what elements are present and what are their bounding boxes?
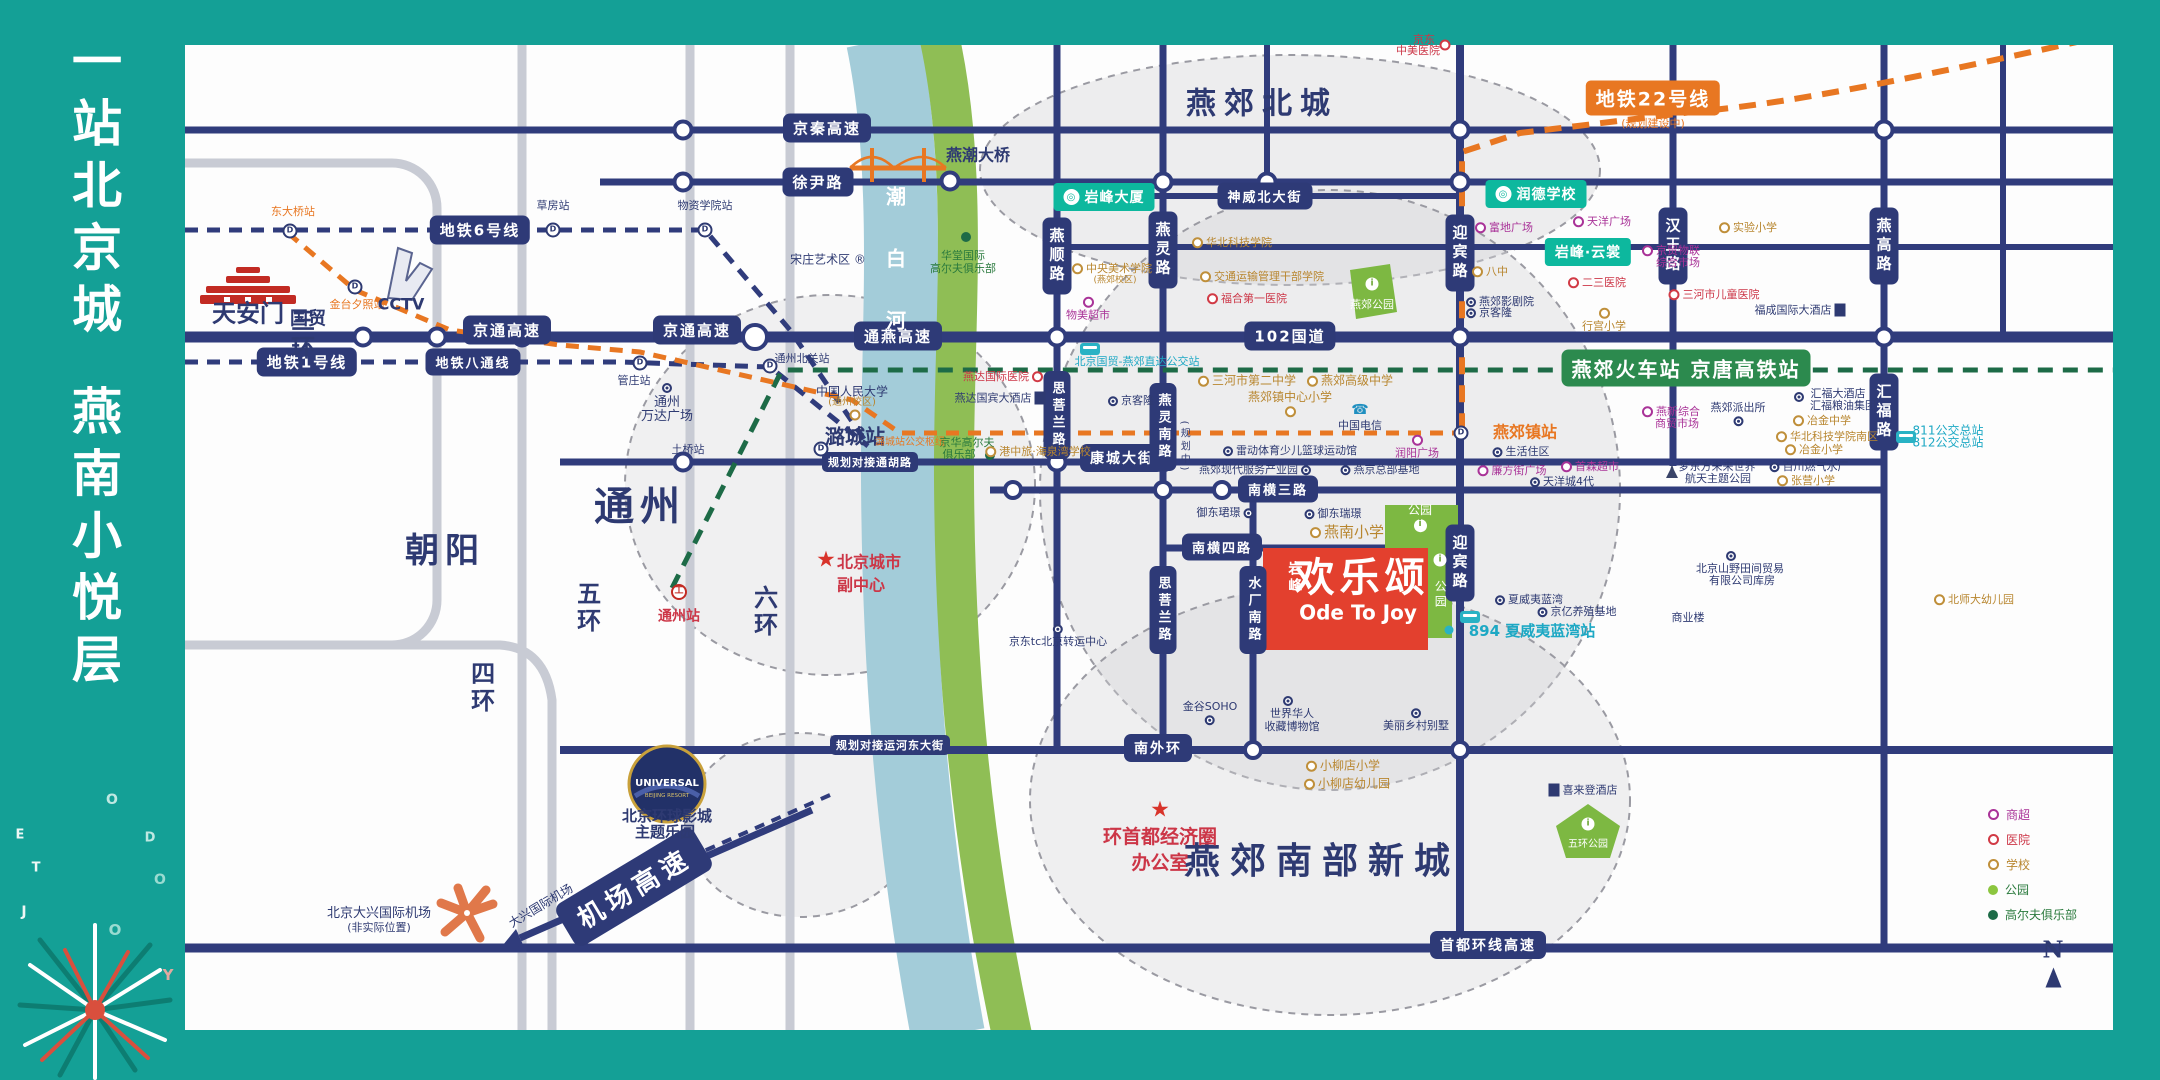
map-label: 河 (886, 311, 906, 332)
brand-logo-icon: ◎ (1064, 189, 1080, 205)
road-badge-text: 燕郊火车站 京唐高铁站 (1572, 354, 1801, 383)
map-label: 天洋城4代 (1530, 476, 1594, 488)
map-label: 燕达国宾大酒店 (955, 392, 1046, 405)
map-label-text: 副中心 (837, 578, 885, 595)
joy-letter: O (106, 792, 118, 808)
map-label: 华堂国际 (941, 250, 985, 262)
road-badge-text: 首都环线高速 (1440, 935, 1536, 955)
metro-icon (546, 223, 561, 238)
hosp-icon (1032, 371, 1043, 382)
map-label: 天洋广场 (1573, 216, 1631, 228)
school-icon (1777, 475, 1788, 486)
map-label-text: 潞城站公交枢纽 (875, 438, 945, 449)
map-label-text: 燕南小学 (1324, 525, 1384, 541)
sidebar-title-char: 城 (72, 270, 122, 342)
map-label: 京东tc北京转运中心 (1009, 624, 1107, 648)
map-label-text: 高尔夫俱乐部 (930, 263, 996, 275)
map-icon (814, 442, 829, 457)
map-label-text: 冶金小学 (1799, 444, 1843, 456)
map-label: 燕达国际医院 (963, 371, 1043, 383)
map-label-text: 夏威夷蓝湾 (1508, 594, 1563, 606)
map-label: 二三医院 (1568, 277, 1626, 289)
road-badge-text: 燕高路 (1874, 218, 1895, 275)
map-label: 有限公司库房 (1709, 575, 1775, 587)
map-label: 北京城市 (837, 555, 901, 572)
map-icon (763, 359, 778, 374)
map-label: 土桥站 (672, 444, 705, 456)
map-label: 收藏博物馆 (1265, 721, 1320, 733)
hosp-icon (1988, 834, 1999, 845)
map-icon (1794, 392, 1804, 402)
map-icon (816, 548, 836, 571)
joy-letter: D (145, 831, 156, 846)
map-label: 金谷SOHO (1183, 701, 1238, 725)
map-label-text: (规划建设中) (1621, 118, 1685, 130)
map-label-text: 物美超市 (1066, 310, 1110, 322)
map-icon (698, 223, 713, 238)
road-badge-text: 地铁八通线 (435, 353, 510, 372)
map-label: 御东珺璟 (1197, 507, 1254, 519)
project-name-en: Ode To Joy (1299, 603, 1417, 624)
map-label-text: 公园 (1408, 504, 1432, 517)
map-label: 首森超市 (1561, 461, 1619, 473)
project-name-en-text: Ode To Joy (1299, 603, 1417, 624)
map-label: 润阳广场 (1395, 435, 1439, 460)
map-label: 梦东方未来世界 (1679, 461, 1756, 473)
road-badge: 思菩兰路 (1150, 566, 1177, 654)
map-label: 中美医院 (1396, 45, 1440, 57)
firework-decoration (20, 925, 170, 1078)
road-badge-text: 燕灵南路 (1154, 393, 1173, 461)
map-label-text: 三河市第二中学 (1212, 375, 1296, 388)
map-label: 汇福粮油集团 (1810, 400, 1876, 412)
road-badge-text: 地铁22号线 (1596, 85, 1710, 112)
road-badge: 地铁6号线 (430, 216, 530, 245)
map-label-text: 百川燃气水厂 (1783, 461, 1849, 473)
map-icon (1366, 278, 1379, 291)
star-icon (1150, 798, 1170, 821)
map-label-text: 四环 (467, 661, 492, 715)
area-tongzhou: 通州 (594, 486, 686, 528)
navy-icon (1530, 477, 1540, 487)
map-label-text: (非实际位置) (347, 922, 411, 934)
school-icon (1192, 237, 1203, 248)
map-label: 办公室 (1131, 854, 1188, 874)
map-label-text: 北京城市 (837, 555, 901, 572)
map-label-text: 燕达国宾大酒店 (955, 392, 1032, 404)
map-icon (1454, 426, 1469, 441)
metro-icon (633, 356, 648, 371)
map-label-text: 综合市场 (1656, 257, 1700, 269)
brand-logo-icon: ◎ (1496, 186, 1512, 202)
joy-letter: J (21, 904, 26, 920)
map-label-text: 天洋广场 (1587, 216, 1631, 228)
map-label: 物美超市 (1066, 297, 1110, 322)
metro-icon (814, 442, 829, 457)
road-badge-text: 迎宾路 (1450, 535, 1471, 592)
school-icon (1599, 308, 1610, 319)
map-label: 美丽乡村别墅 (1383, 708, 1449, 732)
map-icon (546, 223, 561, 238)
map-label: 中央美术学院 (1072, 263, 1152, 275)
map-label-text: 办公室 (1131, 854, 1188, 874)
map-poster: UNIVERSAL BEIJING RESORT (0, 0, 2160, 1080)
map-label: 燕新综合 (1642, 406, 1700, 418)
legend-item-label: 医院 (2006, 831, 2030, 848)
map-label: (规划中) (1178, 421, 1189, 474)
bus-icon (1080, 343, 1100, 355)
map-label: 商业楼 (1672, 612, 1705, 624)
road-badge-text: 地铁6号线 (440, 220, 520, 241)
bldg-icon (1035, 392, 1046, 405)
map-label-text: 物资学院站 (678, 200, 733, 212)
road-badge-text: 规划对接运河东大街 (836, 737, 944, 753)
map-label-text: 三河市儿童医院 (1683, 289, 1760, 301)
navy-icon (1466, 297, 1476, 307)
map-icon (1150, 798, 1170, 821)
shop-icon (1478, 465, 1489, 476)
map-label-text: 俱乐部 (943, 449, 976, 461)
map-label-text: 汇福粮油集团 (1810, 400, 1876, 412)
map-label-text: 894 夏威夷蓝湾站 (1469, 624, 1596, 640)
map-label: 燕郊派出所 (1711, 402, 1766, 426)
joy-letter: E (16, 828, 25, 843)
map-label-text: 通州站 (658, 610, 700, 625)
joy-letter: O (154, 872, 166, 888)
map-label-text: 812公交总站 (1913, 437, 1984, 450)
road-badge: 规划对接运河东大街 (830, 735, 950, 755)
map-label-text: 通州北关站 (775, 353, 830, 365)
map-label-text: 有限公司库房 (1709, 575, 1775, 587)
map-icon (633, 356, 648, 371)
map-label: 宋庄艺术区 ® (790, 254, 866, 267)
road-badge: 神威北大街 (1217, 183, 1312, 210)
map-label-text: 福合第一医院 (1221, 293, 1287, 305)
map-label-text: 福成国际大酒店 (1755, 304, 1832, 316)
map-label-text: 白 (886, 249, 906, 270)
map-label: 燕郊公园 (1350, 299, 1394, 311)
map-label-text: 京东tc北京转运中心 (1009, 636, 1107, 648)
map-label-text: 燕新综合 (1656, 406, 1700, 418)
navy-icon (1283, 696, 1293, 706)
map-label: 综合市场 (1656, 257, 1700, 269)
legend-item: 商超 (1988, 806, 2077, 823)
map-label-text: 华北科技学院南区 (1790, 431, 1878, 443)
map-label-text: 梦东方未来世界 (1679, 461, 1756, 473)
map-label-text: 实验小学 (1733, 222, 1777, 234)
hosp-icon (1440, 40, 1451, 51)
map-label-text: 管庄站 (618, 375, 651, 387)
road-badge-text: 102国道 (1254, 326, 1325, 347)
legend-item: 医院 (1988, 831, 2077, 848)
map-label-text: (燕郊校区) (1093, 276, 1136, 285)
map-label-text: 美丽乡村别墅 (1383, 720, 1449, 732)
navy-icon (1726, 551, 1736, 561)
map-label: 国贸 (290, 311, 326, 330)
map-label: 金台夕照站 (330, 299, 385, 311)
map-label: 白 (886, 249, 906, 270)
road-badge: 首都环线高速 (1430, 931, 1546, 959)
map-label: 京亿养殖基地 (1538, 606, 1617, 618)
map-label-text: 小柳店小学 (1320, 760, 1380, 773)
legend-item-label: 公园 (2005, 881, 2029, 898)
map-label: 世界华人 (1270, 708, 1314, 720)
sidebar-title-char: 层 (72, 620, 122, 692)
map-label-text: 世界华人 (1270, 708, 1314, 720)
map-label: 港中旅·海泉湾学校 (985, 446, 1091, 458)
map-label: 通州站 (658, 610, 700, 625)
school-icon (1304, 779, 1315, 790)
map-label-text: 张营小学 (1791, 475, 1835, 487)
map-label-text: 通州 (654, 396, 680, 410)
map-label-text: 万达广场 (641, 410, 693, 424)
map-label: 894 夏威夷蓝湾站 (1469, 624, 1596, 640)
map-icon (1440, 40, 1451, 51)
map-icon (1283, 696, 1293, 706)
shop-icon (1988, 809, 1999, 820)
map-label-text: 润阳广场 (1395, 448, 1439, 460)
school-icon (1776, 431, 1787, 442)
shop-icon (1475, 222, 1486, 233)
bus-icon (1896, 431, 1916, 443)
road-badge: 102国道 (1244, 322, 1335, 351)
map-label: 副中心 (837, 578, 885, 595)
school-icon (1198, 376, 1209, 387)
map-label-text: 北京山野田间贸易 (1696, 563, 1784, 575)
map-label: 张营小学 (1777, 475, 1835, 487)
map-label: 廉方街广场 (1478, 465, 1547, 477)
map-label-text: 燕郊镇中心小学 (1248, 391, 1332, 404)
compass-label: N (2042, 937, 2063, 964)
map-label-text: 雷动体育少儿篮球运动馆 (1236, 445, 1357, 457)
road-badge: ◎岩峰大厦 (1054, 183, 1155, 211)
road-badge-text: 神威北大街 (1227, 187, 1302, 206)
map-label: 俱乐部 (943, 449, 976, 461)
map-label: 燕郊镇中心小学 (1248, 391, 1332, 417)
school-icon (1306, 761, 1317, 772)
map-icon (1080, 343, 1100, 355)
map-label: 燕郊镇站 (1493, 425, 1557, 442)
school-icon (1785, 444, 1796, 455)
map-label-text: 草房站 (537, 200, 570, 212)
navy-icon (1223, 446, 1233, 456)
navy-icon (1244, 508, 1254, 518)
shop-icon (1083, 297, 1094, 308)
map-label-text: 燕郊高级中学 (1321, 375, 1393, 388)
map-label-text: 河 (886, 311, 906, 332)
dotcyan-icon (1445, 626, 1454, 635)
legend-item: 学校 (1988, 856, 2077, 873)
map-icon (1582, 818, 1595, 831)
map-label: 东大桥站 (271, 206, 315, 218)
map-label: 通州 (654, 396, 680, 410)
map-label: 公园 (1434, 580, 1447, 610)
map-label-text: 燕郊现代服务产业园 (1199, 464, 1298, 476)
navy-icon (1108, 396, 1118, 406)
road-badge: ◎润德学校 (1486, 180, 1587, 208)
map-label: 燕郊高级中学 (1307, 375, 1393, 388)
navy-icon (1411, 708, 1421, 718)
area-yanjiao-north-text: 燕郊北城 (1186, 88, 1338, 120)
map-label-text: 生活住区 (1506, 446, 1550, 458)
map-label: 燕潮大桥 (946, 148, 1010, 165)
road-badge-text: 思菩兰路 (1048, 381, 1067, 449)
map-label: 富地广场 (1475, 222, 1533, 234)
joy-letter: T (32, 861, 41, 876)
map-label: 公园 (1408, 504, 1432, 532)
road-badge: 地铁22号线 (1586, 81, 1720, 116)
rail-icon (671, 584, 687, 600)
map-label: (非实际位置) (347, 922, 411, 934)
map-label: 六环 (750, 585, 775, 639)
hosp-icon (1669, 289, 1680, 300)
map-label-text: 喜来登酒店 (1563, 784, 1618, 796)
school-icon (1793, 415, 1804, 426)
road-badge-text: 思菩兰路 (1154, 576, 1173, 644)
map-label: 小柳店幼儿园 (1304, 778, 1390, 791)
map-label-text: 富地广场 (1489, 222, 1533, 234)
navy-icon (1301, 465, 1311, 475)
map-label-text: 北京大兴国际机场 (327, 907, 431, 921)
shop-icon (1573, 216, 1584, 227)
metro-icon (698, 223, 713, 238)
school-icon (1719, 222, 1730, 233)
map-label: 冶金小学 (1785, 444, 1843, 456)
golf-icon (961, 232, 971, 242)
map-label-text: 二三医院 (1582, 277, 1626, 289)
bldg-icon (1549, 784, 1560, 797)
map-label: 福成国际大酒店 (1755, 304, 1846, 317)
map-label: 三河市儿童医院 (1669, 289, 1760, 301)
map-label: 喜来登酒店 (1549, 784, 1618, 797)
map-label-text: 华北科技学院 (1206, 237, 1272, 249)
map-label-text: 宋庄艺术区 ® (790, 254, 866, 267)
map-label: 北师大幼儿园 (1934, 594, 2014, 606)
road-badge: 京秦高速 (783, 114, 871, 143)
compass-needle (2045, 968, 2061, 988)
map-icon (1666, 464, 1678, 478)
map-label-text: 御东珺璟 (1197, 507, 1241, 519)
map-label-text: CCTV (378, 297, 425, 314)
road-badge: 燕顺路 (1043, 218, 1072, 295)
map-label: 环首都经济圈 (1103, 828, 1217, 848)
joy-letter: O (109, 921, 122, 939)
road-badge-text: 南横三路 (1248, 480, 1308, 499)
map-label: 通州北关站 (775, 353, 830, 365)
road-badge: 规划对接通胡路 (822, 452, 918, 472)
area-yanjiao-south: 燕郊南部新城 (1184, 843, 1460, 881)
hosp-icon (1207, 293, 1218, 304)
map-label: 管庄站 (618, 375, 651, 387)
road-badge: 燕郊火车站 京唐高铁站 (1562, 350, 1811, 387)
parki-icon (1413, 519, 1426, 532)
map-label-text: 主题乐园 (635, 825, 695, 841)
parki-icon (1366, 278, 1379, 291)
school-icon (985, 446, 996, 457)
road-badge: 燕高路 (1870, 208, 1899, 285)
map-label: 行宫小学 (1582, 308, 1626, 333)
map-label-text: 公园 (1434, 580, 1447, 610)
school-icon (850, 410, 861, 421)
map-label: 福合第一医院 (1207, 293, 1287, 305)
school-icon (1200, 271, 1211, 282)
map-label-text: 北师大幼儿园 (1948, 594, 2014, 606)
map-label: 燕郊现代服务产业园 (1199, 464, 1311, 476)
map-label: 商贸市场 (1655, 418, 1699, 430)
map-label: 高尔夫俱乐部 (930, 263, 996, 275)
road-badge: 水厂南路 (1240, 566, 1267, 654)
map-label-text: 燕郊公园 (1350, 299, 1394, 311)
navy-icon (1794, 392, 1804, 402)
map-label-text: 北京国贸-燕郊直达公交站 (1075, 356, 1200, 368)
map-label-text: 金谷SOHO (1183, 701, 1238, 713)
map-label: 航天主题公园 (1685, 473, 1751, 485)
map-icon (662, 383, 672, 393)
road-badge-text: 水厂南路 (1244, 576, 1263, 644)
map-label: 实验小学 (1719, 222, 1777, 234)
road-badge-text: 燕灵路 (1153, 222, 1174, 279)
road-badge-text: 康城大街 (1090, 448, 1154, 468)
bus-icon (1460, 611, 1480, 623)
map-label-text: 土桥站 (672, 444, 705, 456)
map-label-text: 京亿养殖基地 (1551, 606, 1617, 618)
map-label-text: 燕郊镇站 (1493, 425, 1557, 442)
map-label-text: (规划中) (1178, 421, 1189, 474)
road-badge-text: 徐尹路 (792, 172, 843, 193)
road-badge: 南横四路 (1182, 534, 1262, 561)
map-label-text: 京客隆 (1479, 307, 1512, 319)
park-icon (1988, 885, 1998, 895)
road-badge: 燕灵路 (1149, 212, 1178, 289)
road-badge: 地铁八通线 (425, 349, 520, 376)
map-label-text: 八中 (1486, 266, 1508, 278)
map-label-text: 冶金中学 (1807, 415, 1851, 427)
map-label: 北京国贸-燕郊直达公交站 (1075, 356, 1200, 368)
map-label: 百川燃气水厂 (1770, 461, 1849, 473)
map-label-text: 燕京总部基地 (1354, 464, 1420, 476)
shop-icon (1642, 406, 1653, 417)
navy-icon (1341, 465, 1351, 475)
map-label: 京贸物联 (1642, 245, 1700, 257)
school-icon (1284, 406, 1295, 417)
map-icon (1896, 431, 1916, 443)
map-label: 潮 (886, 187, 906, 208)
map-label: 八中 (1472, 266, 1508, 278)
map-label-text: 燕潮大桥 (946, 148, 1010, 165)
map-label: 小柳店小学 (1306, 760, 1380, 773)
area-tongzhou-text: 通州 (594, 486, 686, 528)
map-icon (283, 224, 298, 239)
navy-icon (1305, 509, 1315, 519)
school-icon (1072, 263, 1083, 274)
map-label: 中国电信 (1338, 403, 1382, 431)
navy-icon (1466, 308, 1476, 318)
navy-icon (1493, 447, 1503, 457)
map-label: 冶金中学 (1793, 415, 1851, 427)
road-badge-text: 京秦高速 (793, 118, 861, 139)
map-label: 潞城站公交枢纽 (875, 438, 945, 449)
map-label: 主题乐园 (635, 825, 695, 841)
map-label-text: 廉方街广场 (1492, 465, 1547, 477)
road-badge: 迎宾路 (1446, 215, 1475, 292)
road-badge-text: 岩峰大厦 (1085, 187, 1145, 207)
navy-icon (1538, 607, 1548, 617)
parki-icon (1582, 818, 1595, 831)
map-label-text: 交通运输管理干部学院 (1214, 271, 1324, 283)
star-icon (816, 548, 836, 571)
area-chaoyang-text: 朝阳 (405, 534, 485, 570)
map-label-text: 汇福大酒店 (1811, 388, 1866, 400)
